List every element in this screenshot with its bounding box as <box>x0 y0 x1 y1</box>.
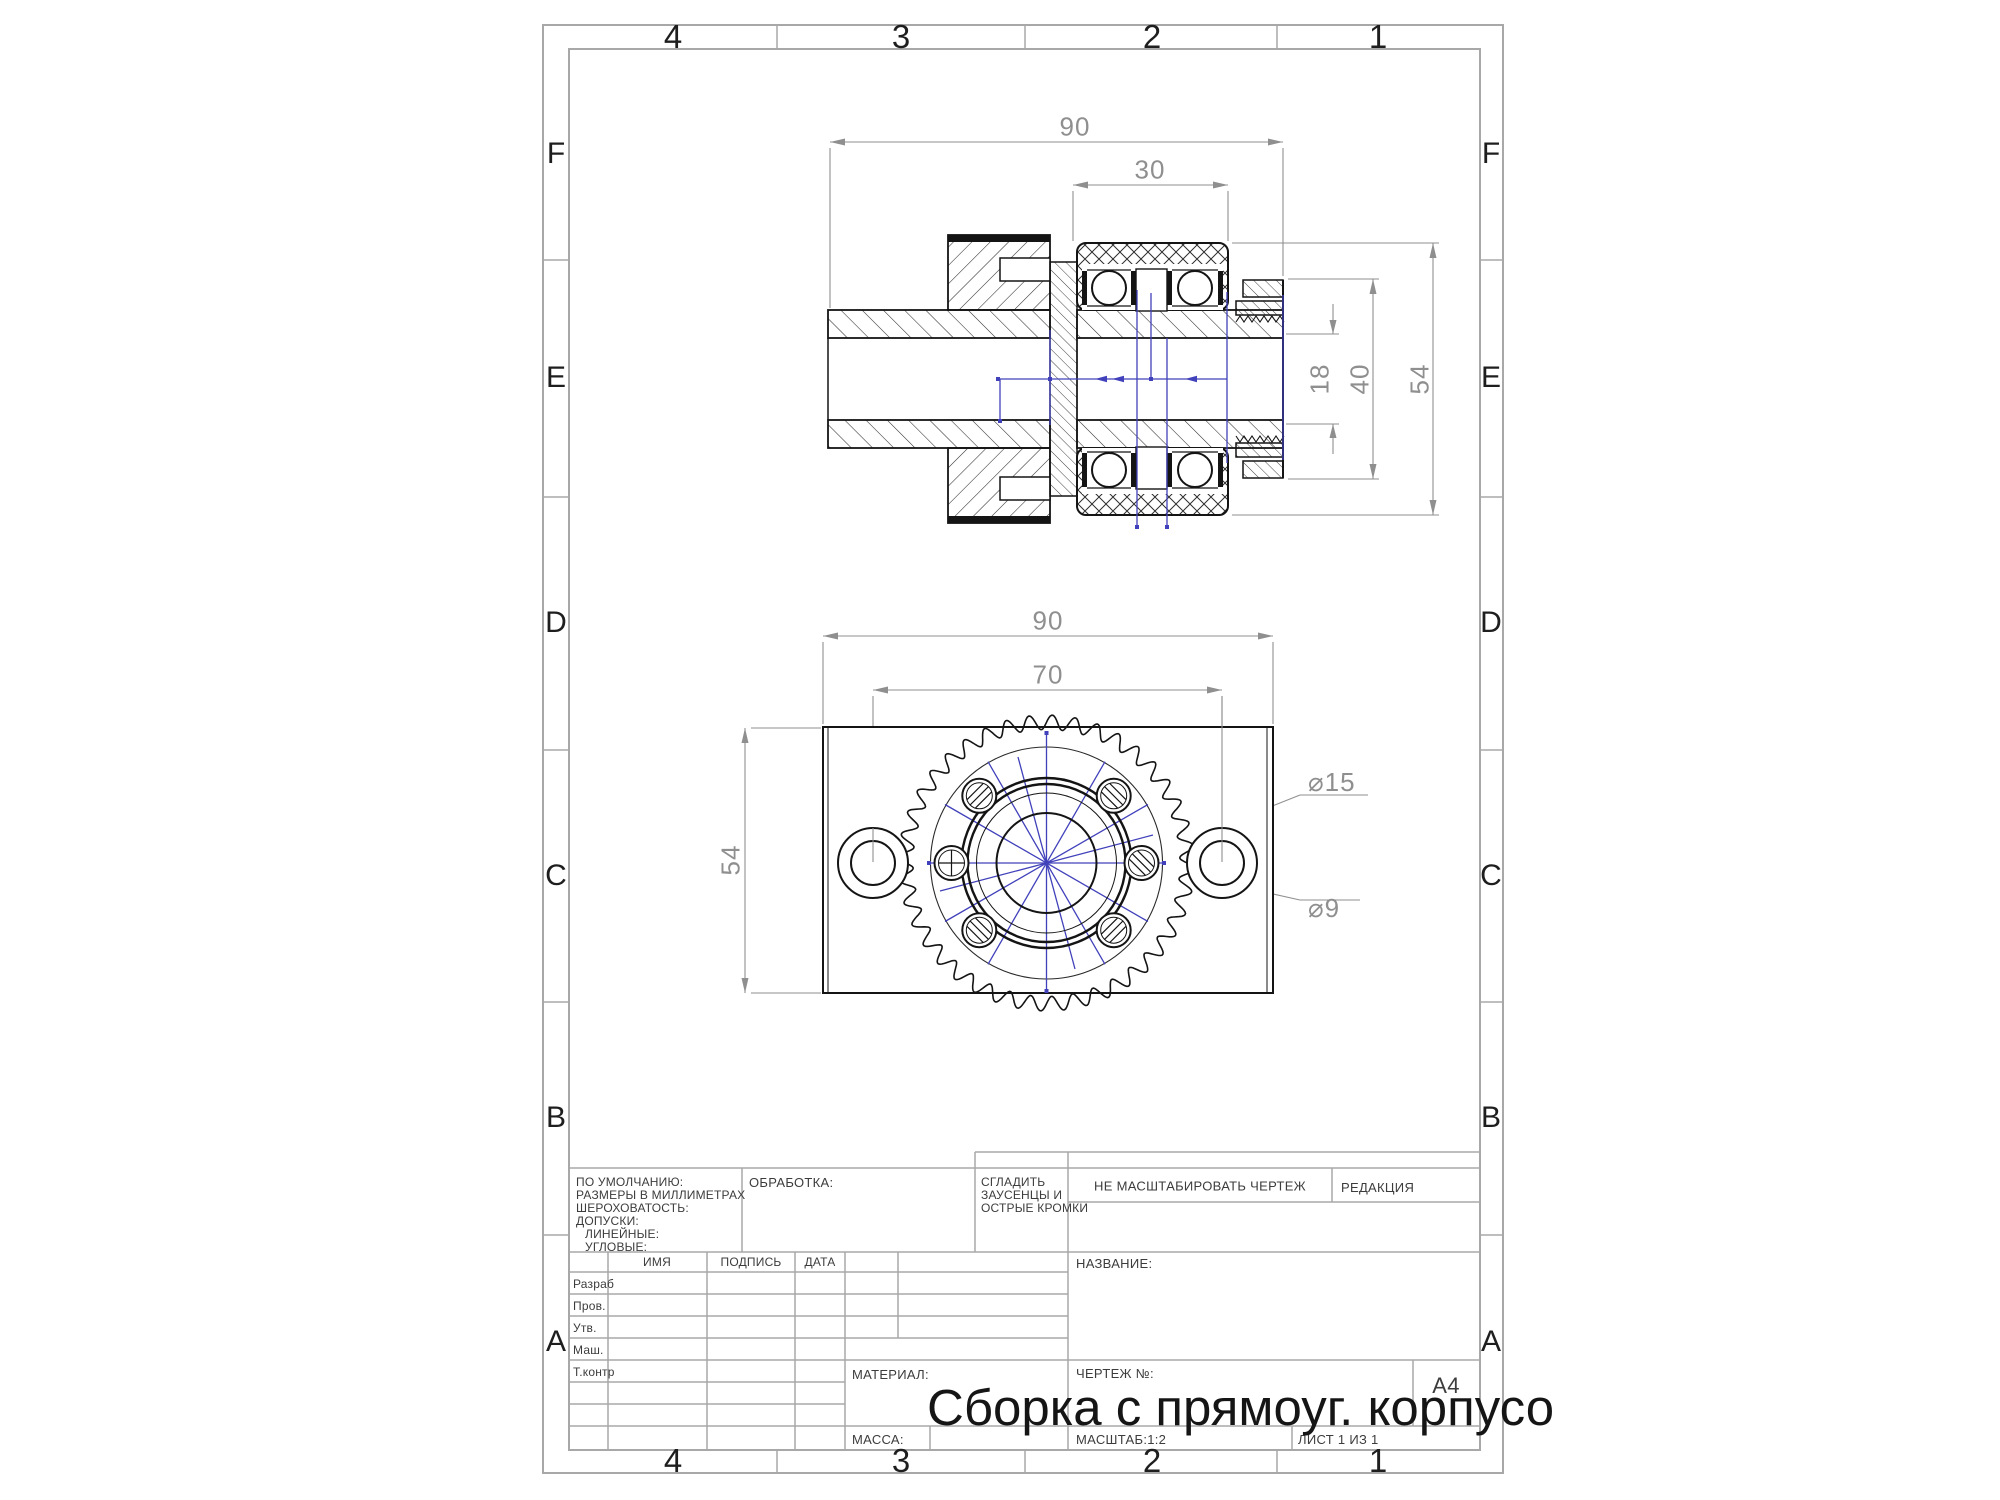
dim-90-front: 90 <box>1033 606 1064 637</box>
tb-col-imya: ИМЯ <box>643 1255 671 1269</box>
grid-row-a-right: A <box>1481 1325 1501 1359</box>
grid-col-4-bottom: 4 <box>664 1442 682 1480</box>
shaft-upper-wall <box>828 310 1050 338</box>
tb-obrabotka: ОБРАБОТКА: <box>749 1175 833 1190</box>
tb-massa: МАССА: <box>852 1432 904 1447</box>
tb-default-line-1: ПО УМОЛЧАНИЮ: <box>576 1175 683 1189</box>
tb-row-mash: Маш. <box>573 1343 604 1357</box>
tb-redakcia: РЕДАКЦИЯ <box>1341 1180 1414 1195</box>
dim-dia9: ⌀9 <box>1308 893 1340 924</box>
tb-col-podpis: ПОДПИСЬ <box>720 1255 781 1269</box>
section-view <box>828 139 1439 530</box>
grid-row-a-left: A <box>546 1325 566 1359</box>
tb-default-line-6: УГЛОВЫЕ: <box>585 1240 647 1254</box>
dim-70-front: 70 <box>1033 660 1064 691</box>
drawing-sheet: 4 3 2 1 4 3 2 1 F E D C B A F E D C B A … <box>0 0 2000 1500</box>
tb-default-line-3: ШЕРОХОВАТОСТЬ: <box>576 1201 689 1215</box>
grid-col-1-top: 1 <box>1369 18 1387 56</box>
dim-40-section: 40 <box>1345 364 1376 395</box>
assembly-title-overlay: Сборка с прямоуг. корпусо <box>927 1378 1554 1437</box>
tb-nazvanie: НАЗВАНИЕ: <box>1076 1256 1152 1271</box>
grid-col-2-bottom: 2 <box>1143 1442 1161 1480</box>
dim-18-section: 18 <box>1305 364 1336 395</box>
grid-row-c-left: C <box>545 859 567 893</box>
tb-sgladit-3: ОСТРЫЕ КРОМКИ <box>981 1201 1088 1215</box>
dim-30-section: 30 <box>1135 155 1166 186</box>
drawing-linework <box>0 0 2000 1500</box>
dim-90-section: 90 <box>1060 112 1091 143</box>
tb-row-tkontr: Т.контр <box>573 1365 615 1379</box>
grid-row-b-right: B <box>1481 1101 1501 1135</box>
tb-sgladit-2: ЗАУСЕНЦЫ И <box>981 1188 1062 1202</box>
dim-dia15: ⌀15 <box>1308 767 1356 798</box>
grid-col-3-top: 3 <box>892 18 910 56</box>
tb-row-utv: Утв. <box>573 1321 597 1335</box>
tb-sgladit-1: СГЛАДИТЬ <box>981 1175 1045 1189</box>
grid-row-e-right: E <box>1481 361 1501 395</box>
grid-col-3-bottom: 3 <box>892 1442 910 1480</box>
tb-default-line-4: ДОПУСКИ: <box>576 1214 639 1228</box>
grid-row-e-left: E <box>546 361 566 395</box>
grid-row-d-left: D <box>545 606 567 640</box>
tb-row-razrab: Разраб <box>573 1277 614 1291</box>
tb-col-data: ДАТА <box>805 1255 836 1269</box>
tb-row-prov: Пров. <box>573 1299 606 1313</box>
tb-material: МАТЕРИАЛ: <box>852 1367 929 1382</box>
shaft-lower-wall <box>828 420 1050 448</box>
grid-row-c-right: C <box>1480 859 1502 893</box>
dim-54-front: 54 <box>716 845 747 876</box>
grid-row-d-right: D <box>1480 606 1502 640</box>
tb-ne-masshtabirovat: НЕ МАСШТАБИРОВАТЬ ЧЕРТЕЖ <box>1094 1179 1306 1194</box>
bearing-housing-lower <box>1077 447 1228 515</box>
grid-row-f-right: F <box>1482 137 1500 171</box>
grid-row-f-left: F <box>547 137 565 171</box>
tb-default-line-5: ЛИНЕЙНЫЕ: <box>585 1227 659 1241</box>
dim-54-section: 54 <box>1405 364 1436 395</box>
threaded-end <box>1236 280 1284 478</box>
bearing-housing-upper <box>1077 243 1228 311</box>
grid-col-1-bottom: 1 <box>1369 1442 1387 1480</box>
grid-row-b-left: B <box>546 1101 566 1135</box>
grid-col-2-top: 2 <box>1143 18 1161 56</box>
tb-default-line-2: РАЗМЕРЫ В МИЛЛИМЕТРАХ <box>576 1188 745 1202</box>
grid-col-4-top: 4 <box>664 18 682 56</box>
